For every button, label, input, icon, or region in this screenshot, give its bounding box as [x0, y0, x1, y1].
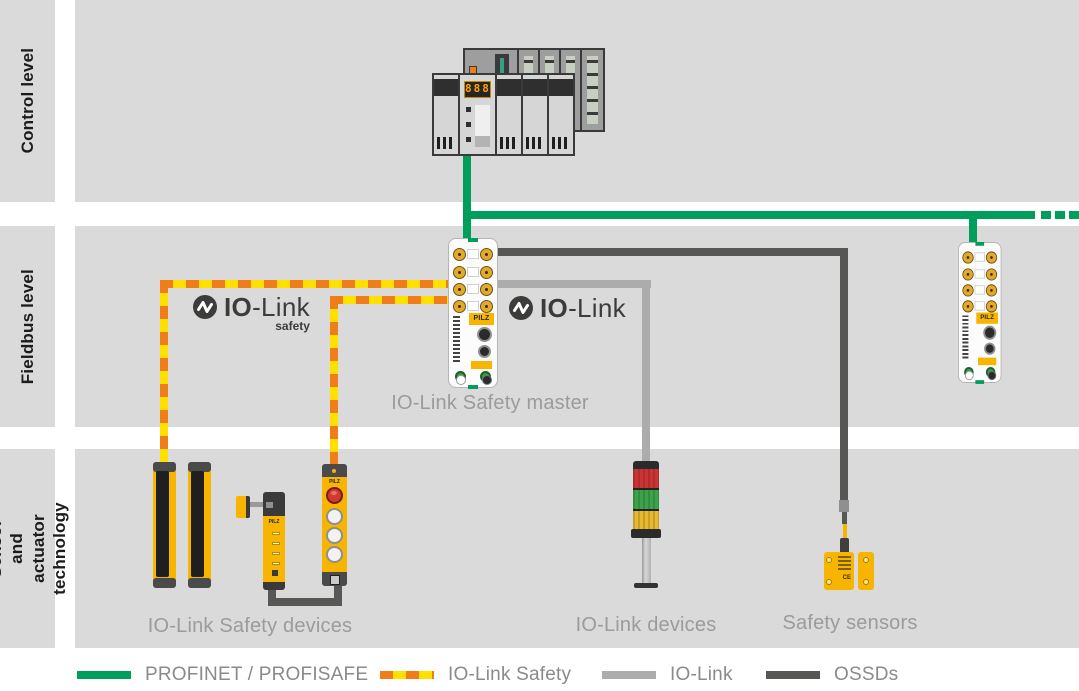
master-round-connector — [984, 343, 995, 355]
curtain-optics — [191, 471, 204, 577]
push-button — [326, 546, 343, 563]
logo-io: IO — [540, 293, 568, 323]
plc-seven-segment-display: 888 — [464, 81, 491, 98]
master-port-row — [962, 283, 997, 296]
sensor-screw — [863, 557, 869, 563]
plc-cpu-card — [475, 105, 490, 147]
curtain-cap — [153, 578, 176, 588]
ossd-cable-vertical — [840, 248, 848, 501]
pushbutton-cap — [322, 464, 347, 477]
m12-port — [962, 251, 973, 263]
safety-interlock-switch: PILZ — [263, 492, 285, 590]
pushbutton-body: PILZ — [322, 477, 347, 572]
m12-port — [480, 283, 493, 296]
iolink-safety-cable1-horizontal — [160, 280, 455, 288]
master-yellow-strip — [471, 361, 492, 369]
m12-port — [986, 284, 997, 296]
interlock-foot — [263, 582, 285, 590]
master-top-tab — [975, 242, 984, 246]
master-port-row — [453, 247, 493, 261]
profinet-cable-plc-drop — [463, 154, 471, 244]
logo-io: IO — [224, 292, 252, 322]
m12-port — [480, 248, 493, 261]
io-link-safety-logo: IO-Link safety — [193, 295, 310, 332]
curtain-cap — [188, 578, 211, 588]
iolink-safety-cable1-vertical — [160, 280, 168, 466]
pushbutton-foot — [322, 572, 347, 586]
ce-mark: CE — [843, 575, 851, 581]
sidebar-band-fieldbus: Fieldbus level — [0, 226, 55, 427]
ossd-cable-horizontal — [490, 248, 848, 256]
safety-sensor: CE — [824, 552, 854, 590]
sidebar-band-sensor: Sensor and actuator technology — [0, 449, 55, 648]
port-indicator — [467, 249, 479, 259]
emergency-stop-button — [326, 487, 343, 504]
port-indicator — [975, 301, 985, 310]
master-port-row — [453, 282, 493, 296]
sensor-cable-sleeve — [839, 500, 849, 512]
iolink-safety-master-secondary: PILZ — [958, 242, 1008, 392]
sensor-connector — [840, 538, 849, 553]
plc-rack-front: 888 — [432, 73, 575, 156]
master-port-row — [453, 265, 493, 279]
sensor-screw — [826, 579, 832, 585]
m12-port — [962, 268, 973, 280]
pilz-brand-label: PILZ — [976, 313, 998, 324]
master-port-row — [962, 250, 997, 263]
sensor-cable-taper — [842, 512, 847, 524]
safety-sensor-actuator — [858, 552, 874, 590]
port-indicator — [975, 252, 985, 261]
m12-port — [986, 300, 997, 312]
master-bottom-plug — [988, 371, 997, 380]
io-link-logo-icon — [193, 295, 217, 319]
interlock-led — [272, 552, 280, 555]
m12-port — [453, 283, 466, 296]
io-devices-caption: IO-Link devices — [556, 614, 736, 637]
interlock-led — [272, 562, 280, 565]
level-label-sensor-line2: actuator technology — [28, 502, 71, 595]
m12-port — [986, 251, 997, 263]
plc-module-vents — [526, 137, 544, 149]
master-round-connector — [983, 326, 996, 340]
plc-io-module — [523, 75, 549, 154]
plc-power-module — [434, 75, 460, 154]
m12-port — [480, 266, 493, 279]
m12-port — [453, 248, 466, 261]
legend-item-iolink-safety: IO-Link Safety — [380, 666, 571, 684]
ossd-ubend-right — [334, 584, 342, 606]
master-port-row — [962, 267, 997, 280]
master-bottom-tab — [975, 380, 984, 384]
plc-io-module — [497, 75, 523, 154]
legend-swatch-iolink-safety — [380, 671, 434, 679]
port-indicator — [467, 301, 479, 311]
io-link-wordmark: IO-Link — [540, 296, 626, 320]
legend-label: IO-Link Safety — [448, 664, 571, 686]
plc-module-top — [523, 79, 547, 96]
pilz-brand-label: PILZ — [469, 313, 494, 325]
master-caption: IO-Link Safety master — [368, 392, 612, 415]
interlock-rod — [250, 502, 264, 507]
tower-foot — [634, 583, 658, 588]
master-barcode — [453, 316, 460, 363]
master-bottom-socket — [965, 371, 974, 380]
plc-back-module — [582, 50, 603, 130]
architecture-diagram: Control level Fieldbus level Sensor and … — [0, 0, 1079, 691]
interlock-led — [272, 532, 280, 535]
io-link-logo-icon — [509, 296, 533, 320]
iolink-cable-horizontal — [490, 280, 651, 288]
legend-swatch-profinet — [77, 671, 131, 679]
port-indicator — [975, 285, 985, 294]
pilz-brand-label: PILZ — [263, 519, 285, 525]
level-label-sensor-line1: Sensor and — [0, 502, 28, 595]
profinet-trunk-line — [463, 211, 1035, 219]
profinet-trunk-dash — [1069, 211, 1079, 219]
master-bottom-socket — [456, 375, 466, 385]
master-top-tab — [468, 238, 478, 242]
master-round-connector — [477, 327, 492, 342]
interlock-led — [272, 542, 280, 545]
iolink-cable-vertical — [642, 280, 650, 466]
iolink-safety-cable2-horizontal — [330, 296, 455, 304]
sensor-screw — [863, 579, 869, 585]
master-yellow-strip — [978, 358, 996, 366]
master-bottom-tab — [468, 385, 478, 389]
legend-swatch-iolink — [602, 671, 656, 679]
tower-pole — [642, 538, 651, 583]
sensor-markings — [838, 556, 851, 572]
plc-module-vents — [437, 137, 455, 149]
m12-port — [986, 268, 997, 280]
m12-port — [962, 300, 973, 312]
light-curtain — [153, 462, 176, 588]
profinet-trunk-dash — [1055, 211, 1065, 219]
push-button — [326, 508, 343, 525]
plc-module-vents — [552, 137, 570, 149]
logo-link: -Link — [568, 293, 626, 323]
plc-cpu-module: 888 — [460, 75, 497, 154]
io-link-wordmark: IO-Link — [224, 295, 310, 319]
ossd-ubend-bottom — [268, 598, 342, 606]
level-label-sensor: Sensor and actuator technology — [0, 502, 70, 595]
port-indicator — [467, 284, 479, 294]
m12-port — [453, 300, 466, 313]
legend-label: OSSDs — [834, 664, 898, 686]
port-indicator — [467, 267, 479, 277]
legend-item-profinet: PROFINET / PROFISAFE — [77, 666, 368, 684]
master-port-row — [453, 299, 493, 313]
io-link-logo-text: IO-Link safety — [224, 295, 310, 332]
level-label-fieldbus: Fieldbus level — [17, 269, 38, 384]
profinet-trunk-dash — [1041, 211, 1051, 219]
plc-cpu-leds — [466, 107, 471, 151]
pilz-brand-label: PILZ — [322, 479, 347, 485]
tower-base — [631, 529, 661, 538]
legend-label: IO-Link — [670, 664, 733, 686]
tower-red-segment — [633, 469, 659, 488]
master-body: PILZ — [958, 242, 1002, 383]
sensor-wire — [843, 524, 847, 539]
plc-module-vents — [500, 137, 518, 149]
plc-module-top — [497, 79, 521, 96]
tower-green-segment — [633, 490, 659, 509]
plc-module-top — [434, 79, 458, 96]
plc-io-module — [549, 75, 573, 154]
legend-item-iolink: IO-Link — [602, 666, 733, 684]
interlock-actuator — [236, 496, 250, 518]
iolink-safety-cable2-vertical — [330, 296, 338, 468]
iolink-safety-master: PILZ — [448, 238, 498, 388]
interlock-head — [263, 492, 285, 516]
plc-module-top — [549, 79, 573, 96]
light-curtain — [188, 462, 211, 588]
push-button — [326, 527, 343, 544]
io-link-logo: IO-Link — [509, 296, 626, 320]
master-body: PILZ — [448, 238, 498, 388]
io-link-logo-text: IO-Link — [540, 296, 626, 320]
pushbutton-unit: PILZ — [322, 464, 347, 586]
m12-port — [480, 300, 493, 313]
level-label-control: Control level — [17, 48, 38, 154]
legend-item-ossds: OSSDs — [766, 666, 898, 684]
master-port-row — [962, 299, 997, 312]
sensor-screw — [826, 557, 832, 563]
tower-yellow-segment — [633, 511, 659, 529]
sidebar-band-control: Control level — [0, 0, 55, 202]
port-indicator — [975, 269, 985, 278]
legend-swatch-ossds — [766, 671, 820, 679]
m12-port — [962, 284, 973, 296]
legend-label: PROFINET / PROFISAFE — [145, 664, 368, 686]
interlock-port — [272, 570, 278, 576]
master-barcode — [962, 315, 968, 359]
tower-cap — [633, 461, 659, 469]
logo-link: -Link — [252, 292, 310, 322]
master-bottom-plug — [482, 375, 492, 385]
safety-devices-caption: IO-Link Safety devices — [135, 615, 365, 638]
safety-sensors-caption: Safety sensors — [770, 612, 930, 635]
curtain-optics — [156, 471, 169, 577]
master-round-connector — [478, 345, 491, 358]
m12-port — [453, 266, 466, 279]
